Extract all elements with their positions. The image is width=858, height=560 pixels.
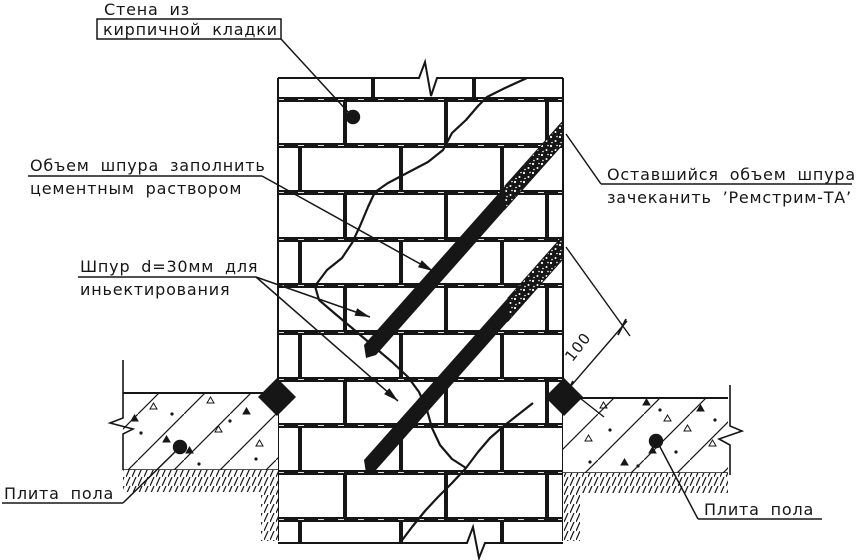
head-joint	[298, 335, 302, 377]
aggregate-dot	[197, 462, 200, 465]
leader-dot-floor-left	[173, 440, 187, 454]
head-joint	[343, 195, 347, 237]
aggregate-dot	[713, 418, 716, 421]
head-joint	[500, 335, 504, 377]
head-joint	[500, 522, 504, 543]
label-caulk-line2: зачеканить ’Ремстрим-ТА’	[607, 188, 852, 207]
label-borehole-line2: иньектирования	[80, 280, 230, 299]
head-joint	[545, 288, 549, 330]
masonry-injection-detail-drawing: 100 Стена из кирпичной кладки Объем шпур…	[0, 0, 858, 560]
label-floor-left-text: Плита пола	[4, 484, 114, 503]
aggregate-dot	[170, 412, 173, 415]
aggregate-dot	[658, 408, 661, 411]
aggregate-dot	[674, 450, 677, 453]
aggregate-dot	[228, 419, 231, 422]
head-joint	[444, 195, 448, 237]
head-joint	[545, 382, 549, 423]
label-cement-line1: Объем шпура заполнить	[30, 156, 266, 175]
technical-drawing-page: 100 Стена из кирпичной кладки Объем шпур…	[0, 0, 858, 560]
head-joint	[298, 522, 302, 543]
leader-dot-wall	[346, 110, 360, 124]
head-joint	[545, 195, 549, 237]
leader-dot-floor-right	[649, 434, 663, 448]
label-floor-right-text: Плита пола	[704, 500, 814, 519]
head-joint	[500, 148, 504, 190]
head-joint	[343, 382, 347, 423]
head-joint	[444, 288, 448, 330]
head-joint	[343, 475, 347, 517]
label-floor-right: Плита пола	[698, 500, 822, 519]
head-joint	[399, 148, 403, 190]
head-joint	[371, 78, 375, 97]
head-joint	[444, 102, 448, 143]
head-joint	[472, 78, 476, 97]
head-joint	[500, 428, 504, 470]
label-caulk-line1: Оставшийся объем шпура	[607, 165, 856, 184]
head-joint	[298, 148, 302, 190]
label-wall-line2: кирпичной кладки	[103, 20, 278, 39]
aggregate-dot	[608, 428, 611, 431]
aggregate-dot	[636, 464, 639, 467]
head-joint	[298, 428, 302, 470]
label-cement-line2: цементным раствором	[30, 179, 242, 198]
label-wall-line1: Стена из	[104, 0, 190, 19]
head-joint	[298, 242, 302, 283]
head-joint	[500, 242, 504, 283]
aggregate-dot	[139, 431, 142, 434]
label-floor-left: Плита пола	[2, 484, 123, 503]
label-borehole-line1: Шпур d=30мм для	[80, 257, 258, 276]
head-joint	[399, 242, 403, 283]
head-joint	[444, 475, 448, 517]
head-joint	[545, 475, 549, 517]
aggregate-dot	[588, 460, 591, 463]
aggregate-dot	[254, 457, 257, 460]
